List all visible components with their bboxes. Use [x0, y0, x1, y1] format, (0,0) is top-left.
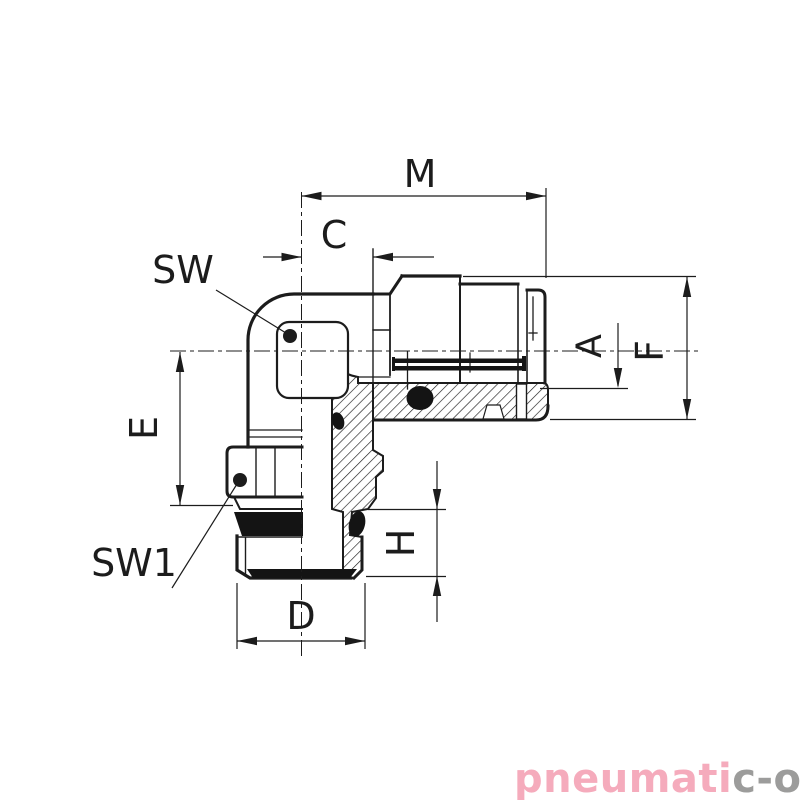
collet-bar-upper [393, 359, 526, 364]
collet-bar-start-tick [392, 357, 395, 371]
label-E: E [122, 416, 166, 440]
collet-ring-slot [517, 384, 527, 419]
neck-outline [373, 276, 402, 294]
label-SW1: SW1 [91, 541, 177, 585]
label-C: C [321, 213, 348, 257]
label-D: D [286, 594, 315, 638]
cartridge-oring [407, 386, 434, 410]
screenshot-canvas: M C SW A F E SW1 H D pneumatic-o® [0, 0, 800, 800]
sw-leader-dot [283, 329, 297, 343]
release-ring-outline [527, 290, 545, 383]
oring-band [234, 512, 303, 536]
fitting-technical-drawing: M C SW A F E SW1 H D pneumatic-o® [0, 0, 800, 800]
logo-text-primary: pneumati [514, 756, 732, 800]
collet-bar-lower [393, 366, 526, 371]
label-SW: SW [152, 248, 214, 292]
hex-nut-outline [227, 447, 302, 497]
label-M: M [404, 152, 437, 196]
sw1-leader-line [172, 484, 237, 588]
label-A: A [570, 334, 610, 358]
dim-C [263, 253, 434, 261]
band-notch [483, 405, 504, 419]
flange-outline [234, 497, 302, 509]
cross-section-hatching [332, 351, 548, 578]
sw1-leader-dot [233, 473, 247, 487]
label-H: H [379, 529, 423, 558]
brand-logo: pneumatic-o® [514, 756, 800, 800]
collet-bar-end-tick [522, 356, 526, 371]
svg-text:pneumatic-o®: pneumatic-o® [514, 756, 800, 800]
logo-text-secondary: c-o [732, 756, 800, 800]
label-F: F [628, 340, 672, 362]
dim-E [170, 352, 233, 506]
